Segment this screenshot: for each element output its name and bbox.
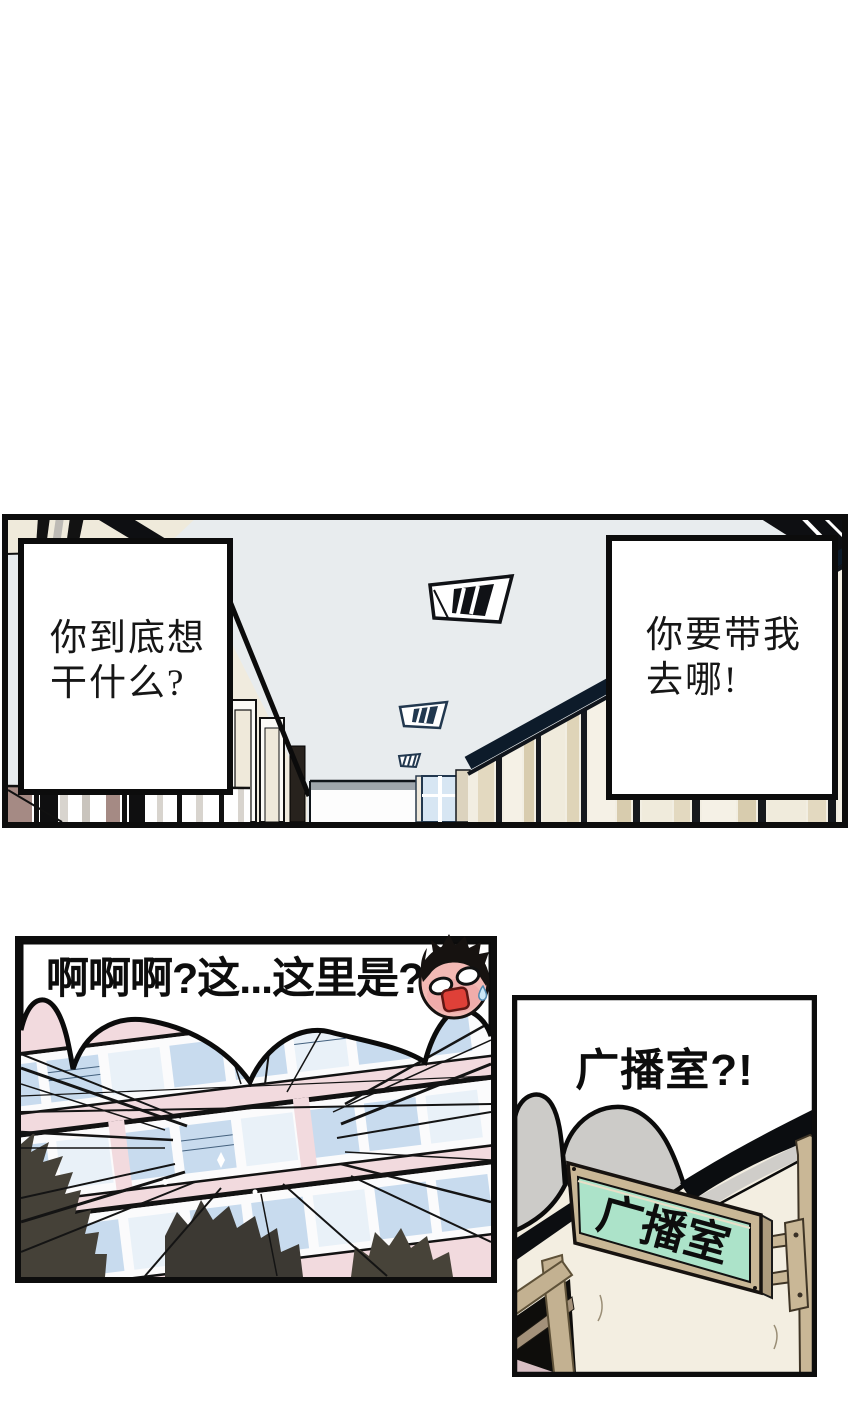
speech-bubble-right: 你要带我 去哪! — [606, 535, 838, 800]
speech-line: 干什么? — [50, 661, 206, 706]
open-mouth — [441, 987, 469, 1012]
speech-line: 去哪! — [646, 658, 802, 703]
speech-bubble-left: 你到底想 干什么? — [18, 538, 233, 795]
shout-text: 啊啊啊?这...这里是?! — [46, 944, 437, 1006]
shocked-chibi-face-icon — [415, 930, 493, 1022]
speech-line: 你到底想 — [50, 616, 206, 661]
comic-page: 你到底想 干什么? 你要带我 去哪! — [0, 0, 850, 1405]
fluorescent-ceiling-light-icon — [399, 754, 420, 767]
speech-line: 你要带我 — [646, 613, 802, 658]
fluorescent-ceiling-light-icon — [430, 576, 512, 622]
fluorescent-ceiling-light-icon — [400, 702, 447, 728]
broadcast-exclaim-text: 广播室?! — [542, 1034, 787, 1098]
